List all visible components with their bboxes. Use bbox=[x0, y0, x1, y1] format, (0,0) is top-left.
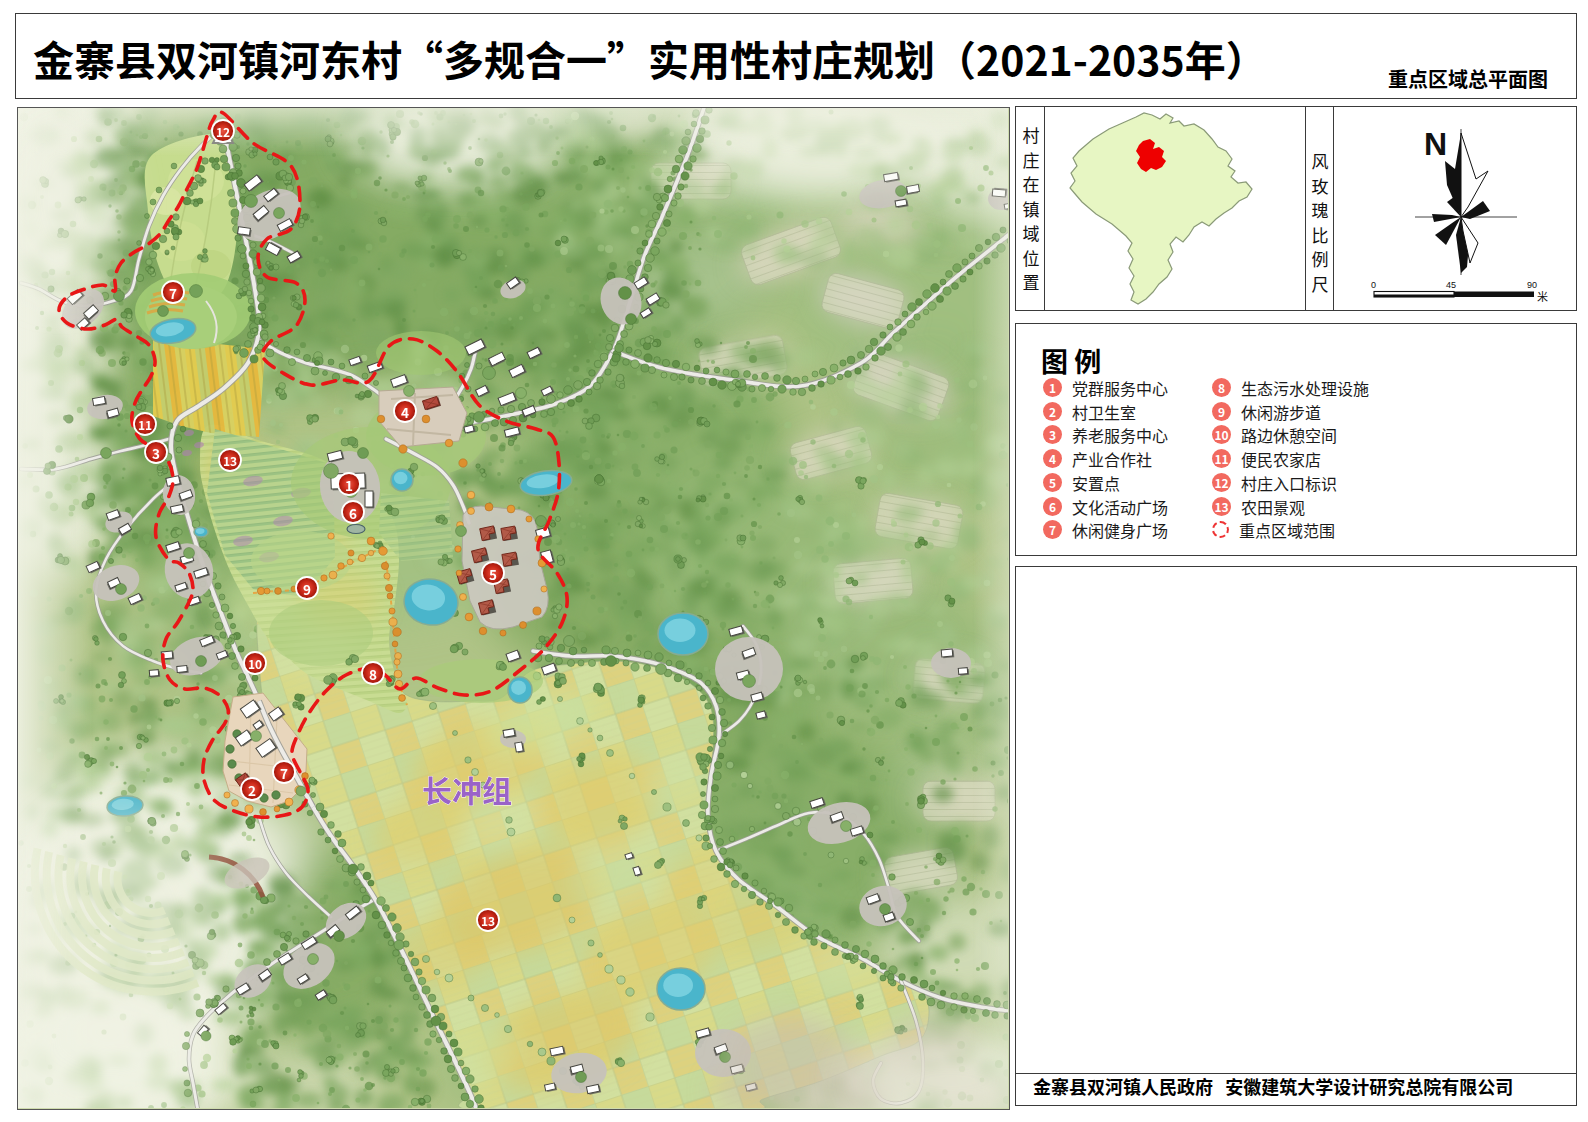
svg-text:13: 13 bbox=[223, 452, 237, 469]
svg-text:米: 米 bbox=[1537, 288, 1548, 304]
svg-text:4: 4 bbox=[401, 402, 409, 422]
svg-text:11: 11 bbox=[138, 416, 152, 433]
svg-text:长冲组: 长冲组 bbox=[422, 767, 512, 811]
svg-text:5: 5 bbox=[489, 564, 497, 584]
svg-text:6: 6 bbox=[349, 503, 357, 523]
svg-text:90: 90 bbox=[1527, 280, 1537, 290]
svg-text:3: 3 bbox=[152, 443, 160, 463]
svg-text:0: 0 bbox=[1371, 280, 1376, 290]
svg-text:1: 1 bbox=[345, 475, 353, 495]
svg-text:13: 13 bbox=[481, 912, 495, 929]
svg-text:12: 12 bbox=[216, 123, 230, 140]
svg-text:2: 2 bbox=[248, 780, 256, 800]
svg-text:8: 8 bbox=[369, 664, 377, 684]
svg-text:10: 10 bbox=[248, 655, 262, 672]
svg-text:N: N bbox=[1424, 126, 1447, 162]
svg-text:45: 45 bbox=[1446, 280, 1456, 290]
svg-text:7: 7 bbox=[280, 763, 288, 783]
svg-text:9: 9 bbox=[303, 579, 311, 599]
svg-text:7: 7 bbox=[169, 283, 177, 303]
